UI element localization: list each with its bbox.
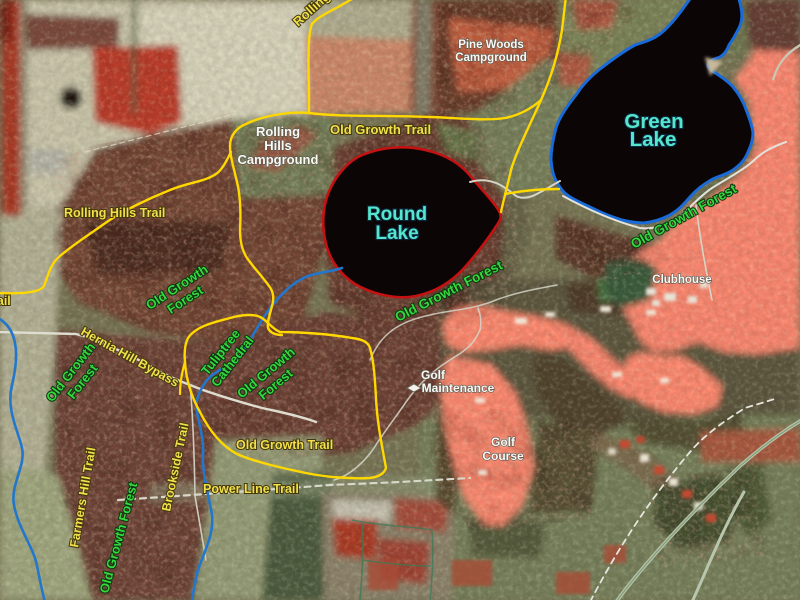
svg-text:Maintenance: Maintenance [422, 381, 495, 395]
svg-text:rail: rail [0, 294, 11, 308]
svg-text:Campground: Campground [455, 52, 527, 64]
svg-text:Course: Course [482, 449, 524, 463]
svg-text:Round: Round [367, 204, 427, 225]
svg-text:Pine Woods: Pine Woods [458, 39, 524, 51]
svg-text:Golf: Golf [491, 435, 516, 449]
svg-text:Rolling: Rolling [256, 124, 300, 139]
svg-text:Lake: Lake [630, 128, 677, 151]
svg-text:Old Growth Trail: Old Growth Trail [330, 122, 431, 137]
svg-text:Rolling Hills Trail: Rolling Hills Trail [64, 206, 165, 220]
svg-text:Golf: Golf [421, 368, 446, 382]
svg-text:Clubhouse: Clubhouse [652, 274, 711, 286]
svg-text:Hills: Hills [264, 138, 291, 153]
svg-text:Power Line Trail: Power Line Trail [203, 482, 299, 496]
svg-text:Campground: Campground [238, 152, 319, 167]
svg-text:Lake: Lake [375, 223, 418, 244]
svg-text:Old Growth Trail: Old Growth Trail [236, 438, 333, 452]
